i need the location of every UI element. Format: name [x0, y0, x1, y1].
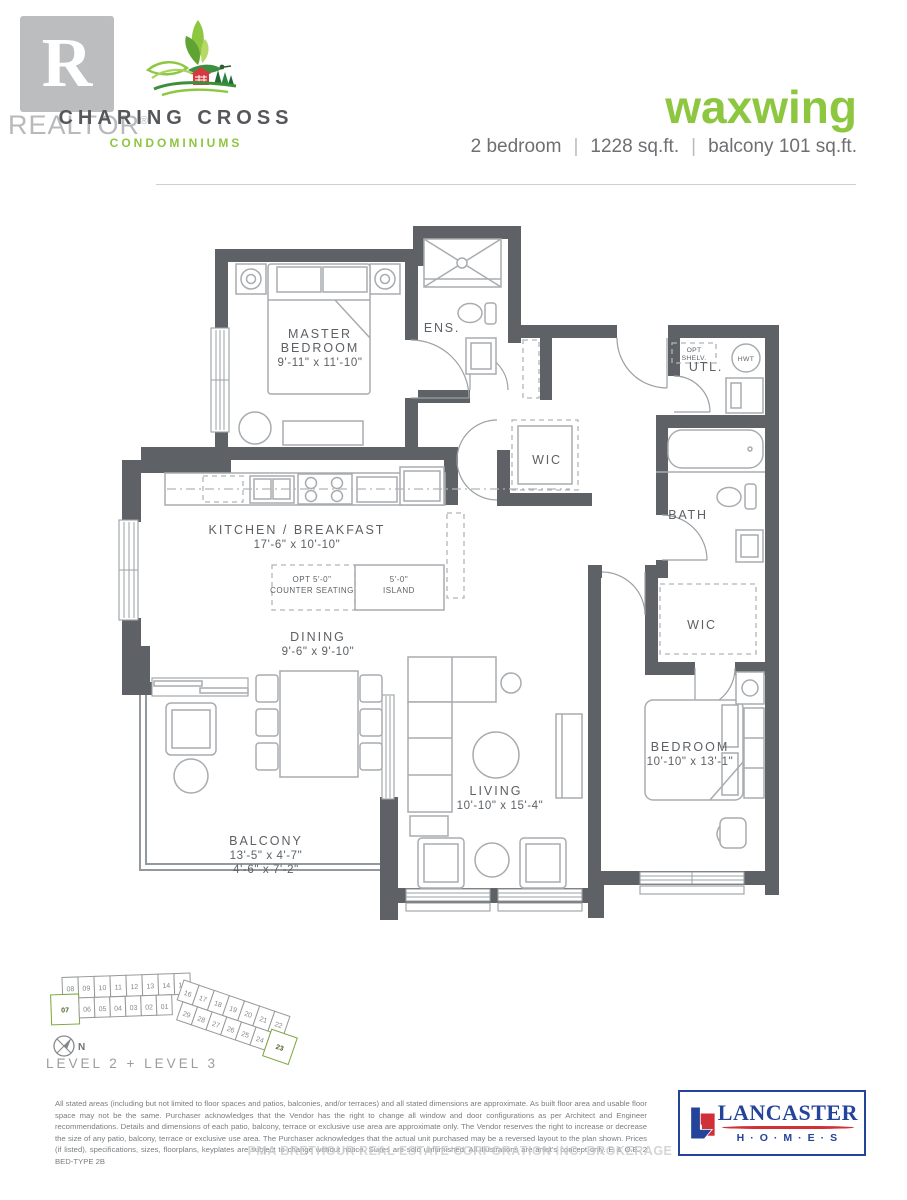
- svg-text:07: 07: [61, 1007, 69, 1014]
- label-counter-opt-1: OPT 5'-0": [293, 575, 332, 584]
- spec-divider: |: [679, 136, 708, 157]
- closets: [447, 340, 756, 654]
- bath-fixtures: [656, 430, 765, 562]
- plan-title: waxwing: [665, 80, 857, 134]
- lancaster-name: LANCASTER: [718, 1102, 858, 1124]
- lancaster-homes-logo: LANCASTER H·O·M·E·S: [678, 1090, 866, 1156]
- north-label: N: [78, 1042, 85, 1053]
- lancaster-underline: [722, 1126, 854, 1129]
- label-bedroom2: BEDROOM: [651, 740, 730, 754]
- compass-icon: N: [54, 1036, 85, 1056]
- label-island-2: ISLAND: [383, 586, 415, 595]
- spec-balcony: balcony 101 sq.ft.: [708, 136, 857, 157]
- dining-furniture: [256, 671, 382, 777]
- label-counter-opt-2: COUNTER SEATING: [270, 586, 354, 595]
- keyplate: 08 09 10 11 12 13 14 15 07 06 05 04 03 0…: [38, 972, 328, 1067]
- label-master-1: MASTER: [288, 327, 352, 341]
- label-utility: UTL.: [689, 360, 723, 374]
- label-bedroom2-dims: 10'-10" x 13'-1": [647, 756, 734, 768]
- label-kitchen: KITCHEN / BREAKFAST: [209, 523, 386, 537]
- label-opt-shelf-2: SHELV.: [682, 355, 707, 362]
- label-balcony-dims2: 4'-6" x 7'-2": [233, 864, 299, 876]
- spec-bedrooms: 2 bedroom: [471, 136, 562, 157]
- ensuite-fixtures: [424, 239, 501, 374]
- label-opt-shelf-1: OPT: [687, 347, 702, 354]
- svg-text:06: 06: [83, 1007, 91, 1014]
- level-label: LEVEL 2 + LEVEL 3: [46, 1056, 218, 1071]
- plan-specs: 2 bedroom|1228 sq.ft.|balcony 101 sq.ft.: [471, 136, 857, 158]
- floorplan-drawing: MASTER BEDROOM 9'-11" x 11'-10" ENS. WIC…: [100, 198, 805, 943]
- lancaster-text-block: LANCASTER H·O·M·E·S: [718, 1102, 858, 1144]
- label-living-dims: 10'-10" x 15'-4": [457, 800, 544, 812]
- header-divider: [156, 184, 856, 185]
- svg-text:08: 08: [66, 986, 74, 993]
- svg-text:09: 09: [82, 986, 90, 993]
- svg-text:12: 12: [130, 984, 138, 991]
- label-island-1: 5'-0": [390, 575, 408, 584]
- svg-text:11: 11: [115, 984, 123, 991]
- svg-text:01: 01: [161, 1004, 169, 1011]
- svg-text:02: 02: [145, 1004, 153, 1011]
- label-master-2: BEDROOM: [281, 341, 360, 355]
- charing-cross-logo: CHARING CROSS CONDOMINIUMS: [58, 18, 294, 150]
- svg-text:14: 14: [162, 983, 170, 990]
- spec-divider: |: [561, 136, 590, 157]
- bird-logo-icon: [146, 18, 246, 100]
- brokerage-watermark: PMA BRETHOUR REAL ESTATE CORPORATION INC…: [240, 1144, 680, 1158]
- living-furniture: [408, 657, 582, 888]
- svg-text:10: 10: [98, 985, 106, 992]
- brand-subtitle: CONDOMINIUMS: [58, 136, 294, 150]
- svg-text:03: 03: [130, 1005, 138, 1012]
- svg-text:04: 04: [114, 1005, 122, 1012]
- label-balcony: BALCONY: [229, 834, 303, 848]
- brand-name: CHARING CROSS: [58, 107, 294, 130]
- label-dining-dims: 9'-6" x 9'-10": [282, 646, 355, 658]
- lancaster-homes-label: H·O·M·E·S: [722, 1132, 858, 1144]
- label-balcony-dims1: 13'-5" x 4'-7": [230, 850, 303, 862]
- label-wic-bedroom2: WIC: [687, 618, 717, 632]
- label-master-dims: 9'-11" x 11'-10": [277, 357, 362, 369]
- label-dining: DINING: [290, 630, 346, 644]
- lancaster-monogram-icon: [686, 1099, 718, 1147]
- label-living: LIVING: [470, 784, 523, 798]
- keyplate-left-block: 08 09 10 11 12 13 14 15 07 06 05 04 03 0…: [50, 973, 192, 1025]
- label-bath: BATH: [668, 508, 708, 522]
- spec-area: 1228 sq.ft.: [590, 136, 679, 157]
- svg-text:13: 13: [146, 983, 154, 990]
- kitchen-fixtures: [165, 467, 570, 610]
- balcony-furniture: [166, 703, 216, 793]
- floorplan-page: R REALTOR® CHARING CROSS CONDOMINIUMS wa…: [0, 0, 907, 1200]
- label-ensuite: ENS.: [424, 321, 460, 335]
- label-wic-master: WIC: [532, 453, 562, 467]
- label-kitchen-dims: 17'-6" x 10'-10": [254, 539, 341, 551]
- svg-text:05: 05: [99, 1006, 107, 1013]
- keyplate-right-wing: 16 17 18 19 20 21 22 29 28 27 26 25 24 2…: [169, 980, 303, 1065]
- label-hwt: HWT: [738, 356, 754, 363]
